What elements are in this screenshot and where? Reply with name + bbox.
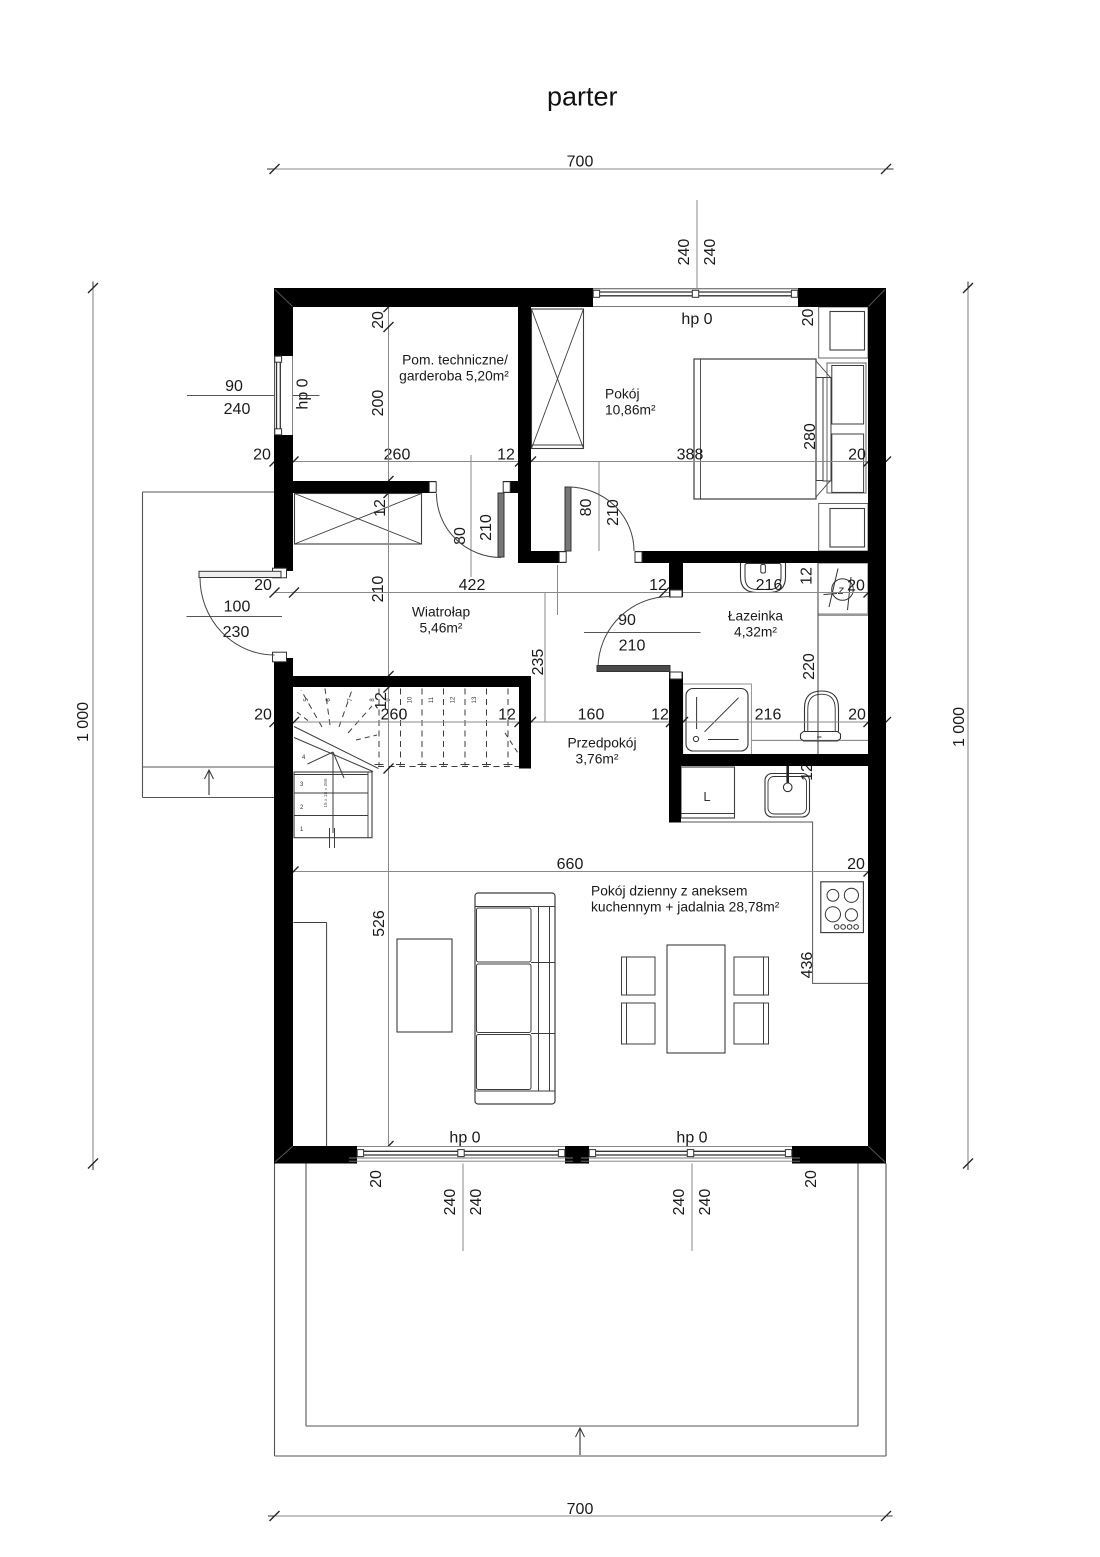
svg-text:Wiatrołap: Wiatrołap	[412, 605, 471, 620]
svg-text:12: 12	[651, 707, 669, 724]
svg-text:230: 230	[223, 624, 250, 641]
svg-text:12: 12	[372, 499, 389, 517]
svg-text:kuchennym + jadalnia 28,78m²: kuchennym + jadalnia 28,78m²	[591, 900, 780, 915]
svg-text:hp 0: hp 0	[295, 378, 312, 409]
svg-text:Pokój dzienny z aneksem: Pokój dzienny z aneksem	[591, 884, 747, 899]
svg-text:20: 20	[800, 309, 817, 327]
svg-text:1 000: 1 000	[951, 707, 968, 747]
svg-text:z: z	[837, 583, 844, 597]
svg-text:10,86m²: 10,86m²	[605, 403, 656, 418]
svg-text:12: 12	[451, 696, 457, 703]
svg-text:20: 20	[847, 856, 865, 873]
svg-text:80: 80	[578, 499, 595, 517]
svg-text:20: 20	[848, 707, 866, 724]
svg-text:235: 235	[530, 649, 547, 676]
svg-text:12: 12	[373, 692, 390, 710]
svg-text:5,46m²: 5,46m²	[420, 621, 463, 636]
svg-text:526: 526	[371, 910, 388, 937]
svg-text:700: 700	[567, 154, 594, 171]
svg-text:parter: parter	[547, 82, 618, 112]
svg-text:hp 0: hp 0	[449, 1130, 480, 1147]
svg-text:216: 216	[755, 707, 782, 724]
svg-text:hp 0: hp 0	[681, 311, 712, 328]
svg-text:20: 20	[254, 707, 272, 724]
svg-text:Pom. techniczne/: Pom. techniczne/	[402, 353, 508, 368]
svg-text:12: 12	[799, 567, 816, 585]
svg-text:12: 12	[497, 447, 515, 464]
svg-text:Pokój: Pokój	[605, 387, 640, 402]
svg-text:240: 240	[676, 239, 693, 266]
svg-text:436: 436	[799, 952, 816, 979]
svg-text:20: 20	[848, 447, 866, 464]
svg-text:hp 0: hp 0	[676, 1130, 707, 1147]
svg-text:660: 660	[557, 856, 584, 873]
svg-text:20: 20	[803, 1170, 820, 1188]
svg-text:1 000: 1 000	[75, 702, 92, 742]
svg-text:12: 12	[649, 577, 667, 594]
svg-text:240: 240	[702, 239, 719, 266]
svg-text:210: 210	[478, 514, 495, 541]
svg-text:3,76m²: 3,76m²	[576, 752, 619, 767]
svg-text:20: 20	[253, 447, 271, 464]
svg-text:15 x 18 = 265: 15 x 18 = 265	[323, 778, 329, 808]
svg-text:90: 90	[225, 378, 243, 395]
svg-text:260: 260	[384, 447, 411, 464]
svg-text:Łazeinka: Łazeinka	[728, 609, 784, 624]
svg-text:700: 700	[567, 1501, 594, 1518]
svg-text:4,32m²: 4,32m²	[734, 625, 777, 640]
svg-text:280: 280	[802, 423, 819, 450]
svg-text:240: 240	[442, 1189, 459, 1216]
svg-text:422: 422	[459, 577, 486, 594]
svg-text:100: 100	[224, 599, 251, 616]
svg-text:10: 10	[408, 696, 414, 703]
svg-text:240: 240	[224, 401, 251, 418]
svg-text:240: 240	[697, 1189, 714, 1216]
svg-text:20: 20	[254, 577, 272, 594]
svg-text:20: 20	[368, 1170, 385, 1188]
svg-text:90: 90	[618, 612, 636, 629]
svg-text:13: 13	[472, 696, 478, 703]
svg-text:160: 160	[578, 707, 605, 724]
svg-text:12: 12	[498, 707, 516, 724]
svg-text:220: 220	[801, 653, 818, 680]
svg-text:garderoba 5,20m²: garderoba 5,20m²	[399, 369, 509, 384]
svg-text:20: 20	[370, 311, 387, 329]
svg-text:210: 210	[605, 499, 622, 526]
svg-text:200: 200	[370, 390, 387, 417]
svg-text:Przedpokój: Przedpokój	[567, 736, 636, 751]
svg-text:210: 210	[370, 576, 387, 603]
svg-text:80: 80	[452, 527, 469, 545]
svg-text:20: 20	[847, 578, 865, 595]
svg-text:11: 11	[429, 696, 435, 703]
svg-text:240: 240	[468, 1189, 485, 1216]
svg-text:240: 240	[671, 1189, 688, 1216]
svg-text:216: 216	[756, 577, 783, 594]
svg-text:388: 388	[677, 447, 704, 464]
svg-text:210: 210	[619, 638, 646, 655]
svg-text:L: L	[703, 789, 710, 804]
